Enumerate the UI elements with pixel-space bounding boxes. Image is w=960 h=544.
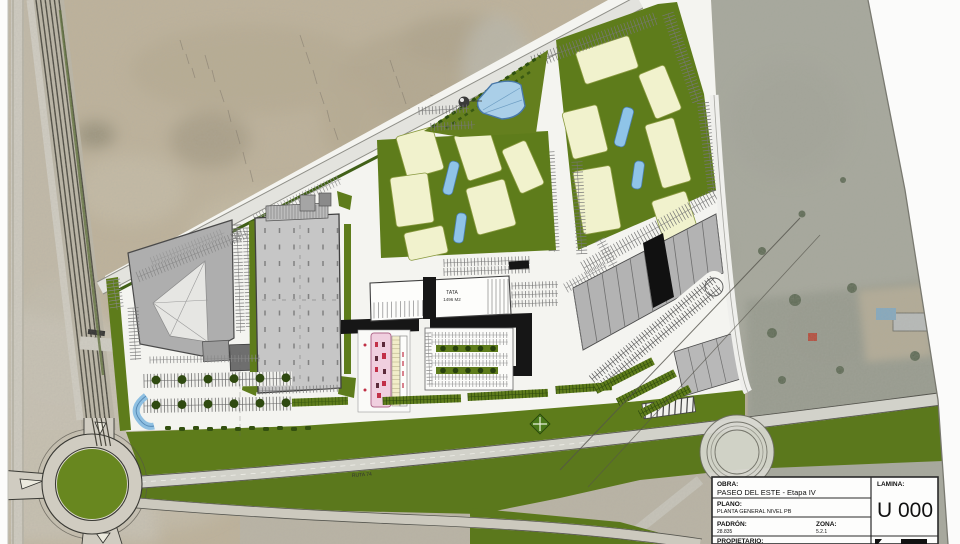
svg-text:LAMINA:: LAMINA:: [877, 481, 904, 488]
svg-text:TATA: TATA: [446, 290, 458, 296]
svg-text:OBRA:: OBRA:: [717, 481, 738, 488]
svg-text:PADRÓN:: PADRÓN:: [717, 519, 747, 528]
svg-text:U 000: U 000: [877, 499, 933, 522]
svg-text:PROPIETARIO:: PROPIETARIO:: [717, 538, 763, 544]
svg-text:1496 M2: 1496 M2: [443, 297, 461, 302]
svg-text:28.835: 28.835: [717, 529, 733, 535]
svg-text:5.2.1: 5.2.1: [816, 529, 827, 535]
svg-text:ZONA:: ZONA:: [816, 521, 837, 528]
svg-text:PASEO DEL ESTE - Etapa IV: PASEO DEL ESTE - Etapa IV: [717, 488, 816, 497]
svg-text:PLANO:: PLANO:: [717, 501, 742, 508]
svg-text:PLANTA GENERAL NIVEL PB: PLANTA GENERAL NIVEL PB: [717, 509, 792, 515]
